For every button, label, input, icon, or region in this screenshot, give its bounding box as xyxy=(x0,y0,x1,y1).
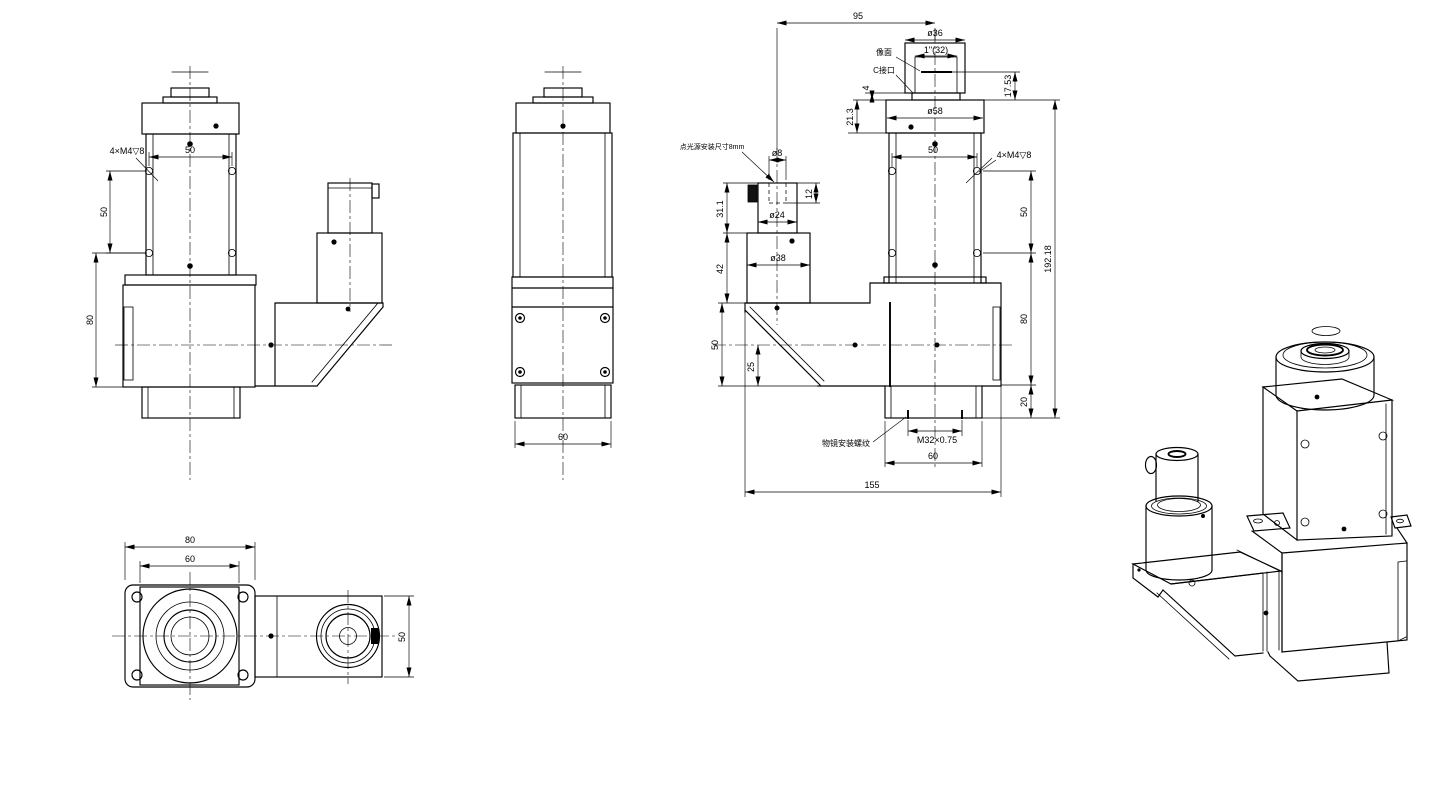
label-objective-note: 物镜安装螺纹 xyxy=(822,438,870,448)
dim-detail-4: 4 xyxy=(861,85,871,90)
dim-top-50: 50 xyxy=(397,632,407,642)
dim-detail-dia36: ø36 xyxy=(927,28,943,38)
dim-detail-95: 95 xyxy=(853,11,863,21)
drawing-sheet: 50 50 80 4×M4▽8 60 xyxy=(0,0,1452,800)
dim-detail-prism50: 50 xyxy=(710,340,720,350)
dim-detail-42: 42 xyxy=(715,264,725,274)
label-c-mount: C接口 xyxy=(873,65,895,75)
dim-detail-60: 60 xyxy=(928,451,938,461)
top-view: 80 60 50 xyxy=(112,535,414,700)
cad-canvas: 50 50 80 4×M4▽8 60 xyxy=(0,0,1452,800)
dim-top-60: 60 xyxy=(185,554,195,564)
label-front-m4: 4×M4▽8 xyxy=(110,146,145,156)
label-image-plane: 像面 xyxy=(876,47,892,57)
dim-detail-155: 155 xyxy=(864,480,879,490)
label-detail-m4: 4×M4▽8 xyxy=(997,150,1032,160)
dim-detail-311: 31.1 xyxy=(715,200,725,218)
dim-front-holes-v: 50 xyxy=(99,207,109,217)
dim-detail-dia38: ø38 xyxy=(770,253,786,263)
dim-detail-dia58: ø58 xyxy=(927,106,943,116)
dim-front-base-h: 80 xyxy=(85,315,95,325)
dim-detail-v80: 80 xyxy=(1019,314,1029,324)
side-view-screws xyxy=(516,314,610,377)
dim-detail-v50: 50 xyxy=(1019,207,1029,217)
label-light-note: 点光源安装尺寸8mm xyxy=(680,142,745,151)
dim-detail-12: 12 xyxy=(804,189,814,199)
dim-detail-holes-h: 50 xyxy=(928,145,938,155)
dim-detail-1753: 17.53 xyxy=(1003,75,1013,98)
dim-top-80: 80 xyxy=(185,535,195,545)
dim-detail-v20: 20 xyxy=(1019,397,1029,407)
side-view: 60 xyxy=(512,66,613,480)
dim-detail-cap-h: 21.3 xyxy=(845,108,855,126)
dim-detail-total-h: 192.18 xyxy=(1043,245,1053,273)
dim-detail-dia24: ø24 xyxy=(769,210,785,220)
dim-side-width: 60 xyxy=(558,432,568,442)
isometric-view xyxy=(1133,327,1411,682)
front-view: 50 50 80 4×M4▽8 xyxy=(85,66,395,480)
dim-detail-dia8: ø8 xyxy=(772,148,783,158)
dim-detail-25: 25 xyxy=(746,362,756,372)
dim-detail-inch: 1"(32) xyxy=(924,45,948,55)
dim-front-holes-h: 50 xyxy=(185,145,195,155)
dim-detail-thread: M32×0.75 xyxy=(917,435,957,445)
detail-view: 95 ø36 1"(32) 像面 C接口 4 17.53 21.3 ø58 50… xyxy=(680,11,1060,497)
